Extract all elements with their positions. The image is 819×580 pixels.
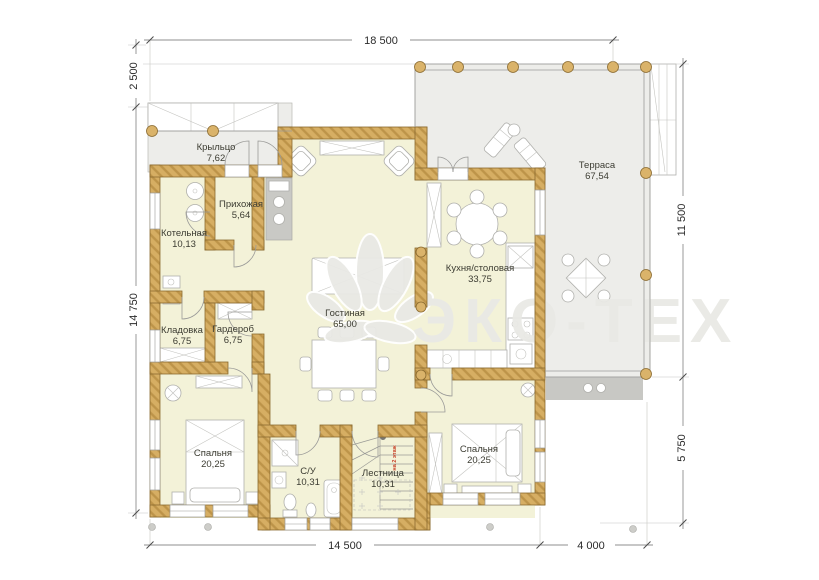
room-area: 10,31 <box>371 479 395 490</box>
room-name: Кухня/столовая <box>446 263 514 274</box>
dim-bottom-right-label: 4 000 <box>577 540 605 552</box>
dim-left-main-label: 14 750 <box>128 293 140 327</box>
floor-plan-page: на 2 этаж 1 2 3 4 5 6 7 8 9 ЭКО-ТЕХ <box>0 0 819 580</box>
floor-plan-drawing: на 2 этаж 1 2 3 4 5 6 7 8 9 ЭКО-ТЕХ <box>0 0 819 580</box>
room-name: Лестница <box>362 468 405 479</box>
room-name: Крыльцо <box>197 142 236 153</box>
room-name: Спальня <box>460 444 498 455</box>
room-area: 10,31 <box>296 477 320 488</box>
step-light <box>584 384 593 393</box>
toilet <box>284 494 296 510</box>
boiler <box>187 183 204 200</box>
room-area: 65,00 <box>333 319 357 330</box>
step-light <box>597 384 606 393</box>
sink <box>306 503 316 517</box>
dim-right-upper-label: 11 500 <box>676 204 688 237</box>
room-area: 20,25 <box>467 455 491 466</box>
terrace-steps <box>546 377 643 400</box>
room-name: Прихожая <box>219 199 263 210</box>
dim-left-upper-label: 2 500 <box>128 62 140 90</box>
dim-right-lower-label: 5 750 <box>676 434 688 462</box>
room-name: Кладовка <box>161 325 204 336</box>
room-name: Гостиная <box>325 308 365 319</box>
stairs-direction-note: на 2 этаж <box>392 445 398 470</box>
dining-table <box>312 340 376 388</box>
equipment-box <box>163 276 180 288</box>
room-area: 5,64 <box>232 210 251 221</box>
nightstand <box>172 492 184 504</box>
terrace-exterior-stairs <box>650 64 676 175</box>
side-table <box>508 124 520 136</box>
room-area: 33,75 <box>468 274 492 285</box>
room-area: 67,54 <box>585 171 609 182</box>
dim-bottom-main-label: 14 500 <box>328 540 362 552</box>
room-area: 6,75 <box>224 335 243 346</box>
room-name: Котельная <box>161 228 207 239</box>
watermark-text: ЭКО-ТЕХ <box>412 287 739 356</box>
room-name: С/У <box>300 466 317 477</box>
room-name: Спальня <box>194 448 232 459</box>
round-table <box>456 203 498 245</box>
room-area: 7,62 <box>207 153 226 164</box>
pillows <box>190 488 240 502</box>
pillows <box>506 430 520 476</box>
dim-top-label: 18 500 <box>364 35 398 47</box>
boiler <box>187 205 204 222</box>
room-name: Гардероб <box>212 324 254 335</box>
room-area: 20,25 <box>201 459 225 470</box>
room-area: 6,75 <box>173 336 192 347</box>
room-area: 10,13 <box>172 239 196 250</box>
room-name: Терраса <box>579 160 616 171</box>
washer <box>272 472 286 488</box>
nightstand <box>246 492 258 504</box>
